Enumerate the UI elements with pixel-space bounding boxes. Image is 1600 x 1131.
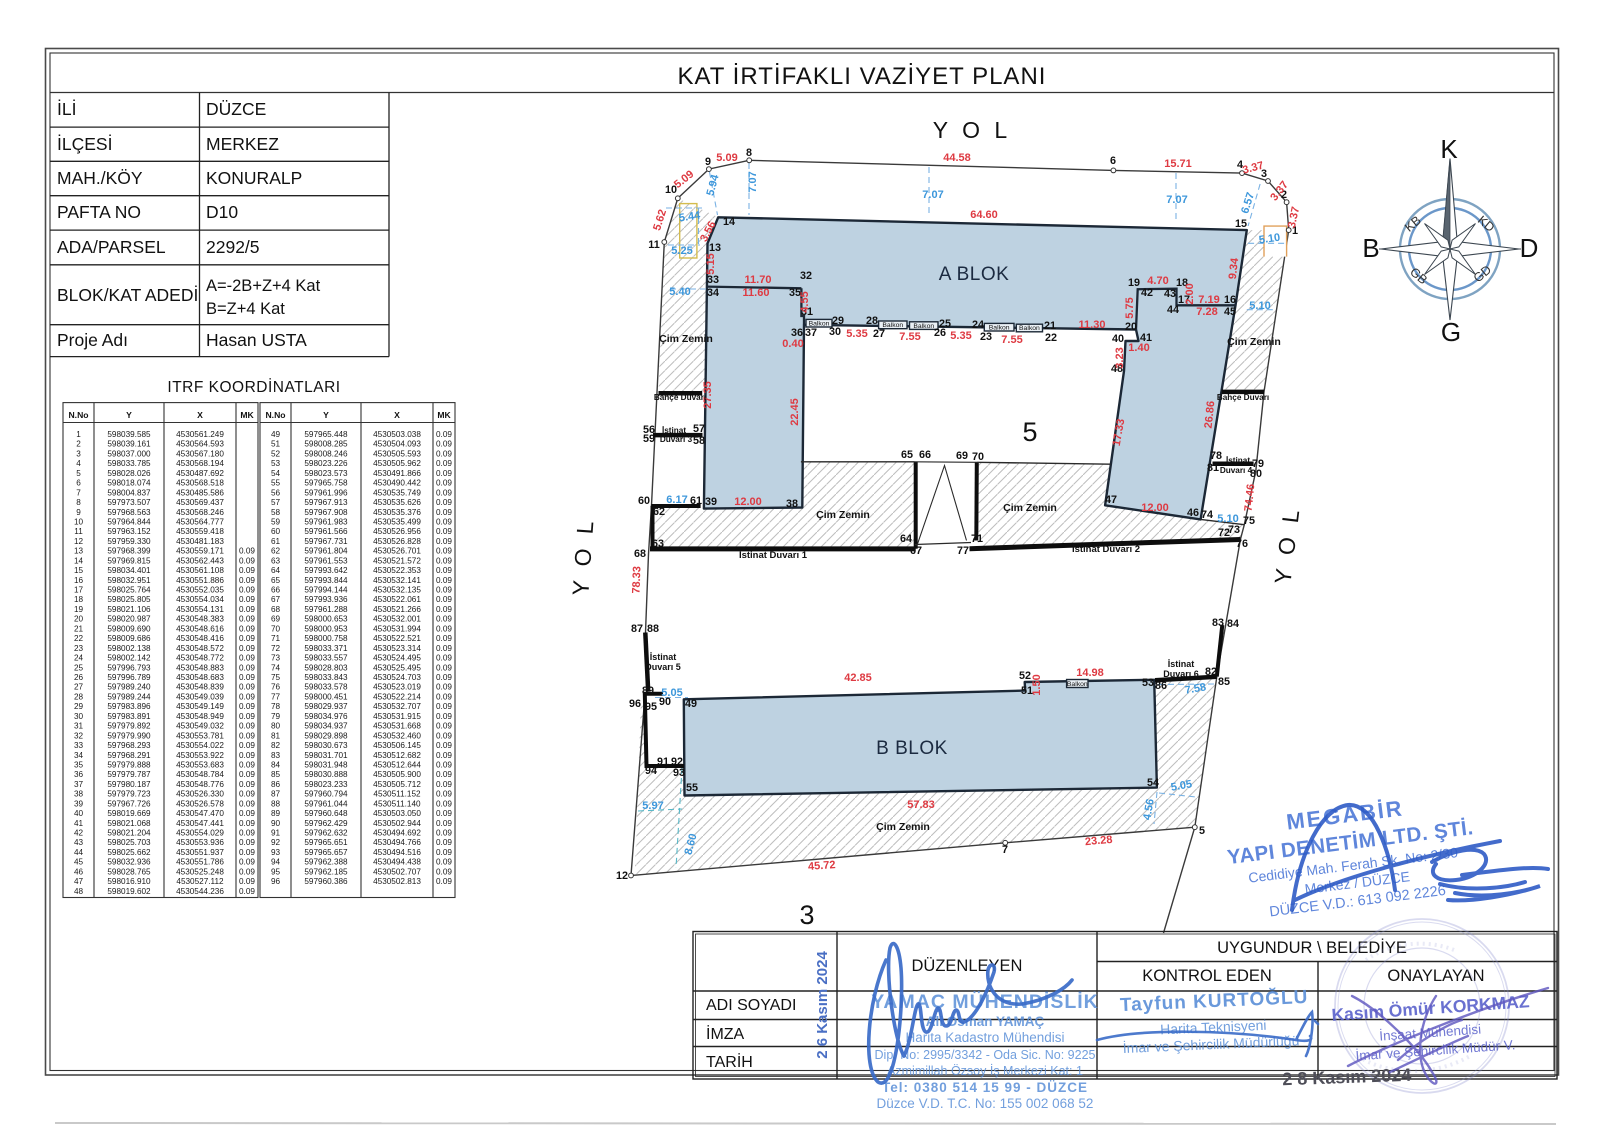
svg-text:5.09: 5.09 (672, 168, 696, 191)
svg-text:Y O L: Y O L (1269, 505, 1304, 586)
svg-text:TARİH: TARİH (706, 1052, 753, 1071)
svg-text:78: 78 (271, 702, 281, 711)
svg-text:K: K (1440, 134, 1458, 164)
svg-text:597994.144: 597994.144 (304, 586, 348, 595)
svg-text:4530559.171: 4530559.171 (176, 547, 224, 556)
svg-text:598039.161: 598039.161 (107, 440, 151, 449)
svg-text:0.09: 0.09 (239, 858, 255, 867)
svg-text:MK: MK (240, 410, 254, 420)
svg-text:65: 65 (271, 576, 281, 585)
svg-text:0.09: 0.09 (239, 615, 255, 624)
svg-text:597965.448: 597965.448 (304, 430, 348, 439)
svg-text:42: 42 (1141, 287, 1153, 299)
svg-text:72: 72 (271, 644, 281, 653)
svg-text:7: 7 (1002, 844, 1008, 856)
svg-text:0.09: 0.09 (436, 527, 452, 536)
svg-text:12: 12 (616, 870, 628, 882)
svg-text:31: 31 (74, 722, 84, 731)
svg-text:4530494.438: 4530494.438 (373, 858, 421, 867)
svg-text:4530491.866: 4530491.866 (373, 469, 421, 478)
svg-text:1: 1 (76, 430, 81, 439)
svg-text:52: 52 (1019, 670, 1031, 682)
svg-text:597967.913: 597967.913 (304, 498, 348, 507)
svg-text:0.09: 0.09 (239, 877, 255, 886)
svg-text:B: B (1362, 233, 1379, 263)
svg-text:İLİ: İLİ (57, 99, 76, 119)
svg-text:88: 88 (271, 799, 281, 808)
svg-text:İstinat: İstinat (1168, 659, 1195, 669)
svg-text:83: 83 (1212, 617, 1224, 629)
svg-text:597960.648: 597960.648 (304, 809, 348, 818)
svg-text:24: 24 (74, 654, 84, 663)
svg-text:0.09: 0.09 (239, 634, 255, 643)
svg-text:597989.240: 597989.240 (107, 683, 151, 692)
svg-text:64.60: 64.60 (970, 209, 998, 221)
svg-text:19: 19 (1128, 277, 1140, 289)
svg-text:İLÇESİ: İLÇESİ (57, 134, 112, 154)
svg-text:0.09: 0.09 (239, 547, 255, 556)
svg-text:0.09: 0.09 (239, 819, 255, 828)
svg-text:4530548.883: 4530548.883 (176, 663, 224, 672)
svg-text:0.09: 0.09 (436, 547, 452, 556)
svg-text:0.40: 0.40 (782, 338, 803, 350)
svg-text:36: 36 (74, 770, 84, 779)
svg-text:90: 90 (271, 819, 281, 828)
svg-text:7.28: 7.28 (1196, 306, 1217, 318)
svg-text:33: 33 (74, 741, 84, 750)
svg-text:KD: KD (1475, 213, 1497, 235)
svg-text:4530535.499: 4530535.499 (373, 518, 421, 527)
svg-text:4530548.949: 4530548.949 (176, 712, 224, 721)
svg-text:15: 15 (74, 566, 84, 575)
svg-text:87: 87 (271, 790, 281, 799)
svg-text:598030.673: 598030.673 (304, 741, 348, 750)
svg-text:0.09: 0.09 (239, 712, 255, 721)
svg-text:0.09: 0.09 (239, 731, 255, 740)
svg-text:15.71: 15.71 (1164, 158, 1192, 170)
svg-text:0.09: 0.09 (436, 867, 452, 876)
svg-text:597968.399: 597968.399 (107, 547, 151, 556)
svg-text:21: 21 (1044, 320, 1056, 332)
svg-text:62: 62 (271, 547, 281, 556)
svg-text:598002.138: 598002.138 (107, 644, 151, 653)
svg-text:Proje Adı: Proje Adı (57, 330, 128, 350)
svg-text:82: 82 (271, 741, 281, 750)
svg-text:0.09: 0.09 (239, 770, 255, 779)
svg-text:7: 7 (76, 488, 81, 497)
svg-text:6: 6 (76, 479, 81, 488)
svg-text:597959.330: 597959.330 (107, 537, 151, 546)
svg-text:2.00: 2.00 (1184, 283, 1196, 304)
svg-text:26: 26 (74, 673, 84, 682)
svg-text:40: 40 (74, 809, 84, 818)
svg-text:598000.758: 598000.758 (304, 634, 348, 643)
svg-text:0.09: 0.09 (436, 799, 452, 808)
svg-text:49: 49 (685, 698, 697, 710)
svg-text:598025.662: 598025.662 (107, 848, 151, 857)
svg-text:32: 32 (74, 731, 84, 740)
svg-text:597996.789: 597996.789 (107, 673, 151, 682)
svg-text:20: 20 (74, 615, 84, 624)
svg-text:4530531.915: 4530531.915 (373, 712, 421, 721)
svg-text:X: X (197, 410, 203, 420)
svg-text:0.09: 0.09 (436, 518, 452, 527)
svg-text:Çim Zemin: Çim Zemin (876, 821, 930, 833)
svg-text:Balkon: Balkon (1019, 325, 1040, 332)
svg-text:4530525.495: 4530525.495 (373, 663, 421, 672)
svg-text:598002.142: 598002.142 (107, 654, 151, 663)
svg-text:597993.936: 597993.936 (304, 595, 348, 604)
svg-text:11.70: 11.70 (745, 274, 772, 286)
svg-text:68: 68 (271, 605, 281, 614)
svg-text:4530554.131: 4530554.131 (176, 605, 224, 614)
svg-text:0.09: 0.09 (436, 751, 452, 760)
svg-text:4530505.962: 4530505.962 (373, 459, 421, 468)
svg-text:ADA/PARSEL: ADA/PARSEL (57, 237, 166, 257)
svg-text:2 8 Kasım 2024: 2 8 Kasım 2024 (1282, 1065, 1412, 1089)
svg-text:30: 30 (829, 326, 841, 338)
svg-text:598009.686: 598009.686 (107, 634, 151, 643)
svg-text:4530512.644: 4530512.644 (373, 761, 421, 770)
svg-text:5.75: 5.75 (1124, 297, 1136, 318)
svg-text:69: 69 (271, 615, 281, 624)
svg-text:4530567.180: 4530567.180 (176, 449, 224, 458)
svg-text:0.09: 0.09 (239, 673, 255, 682)
svg-text:4530487.692: 4530487.692 (176, 469, 224, 478)
svg-text:0.09: 0.09 (239, 605, 255, 614)
svg-text:597983.896: 597983.896 (107, 702, 151, 711)
svg-text:57: 57 (693, 423, 705, 435)
svg-text:14.98: 14.98 (1076, 667, 1104, 679)
svg-text:4.55: 4.55 (799, 291, 811, 312)
svg-text:22.45: 22.45 (789, 398, 801, 426)
svg-text:0.09: 0.09 (436, 683, 452, 692)
svg-text:Balkon: Balkon (1067, 681, 1088, 688)
svg-text:4530548.776: 4530548.776 (176, 780, 224, 789)
svg-text:43: 43 (74, 838, 84, 847)
svg-text:Duvarı 4: Duvarı 4 (1220, 466, 1253, 475)
svg-text:MK: MK (437, 410, 451, 420)
svg-text:0.09: 0.09 (436, 702, 452, 711)
svg-text:598039.585: 598039.585 (107, 430, 151, 439)
svg-text:0.09: 0.09 (239, 790, 255, 799)
svg-text:2292/5: 2292/5 (206, 237, 260, 257)
svg-text:75: 75 (1243, 515, 1255, 527)
svg-text:0.09: 0.09 (436, 673, 452, 682)
svg-text:6: 6 (1110, 155, 1116, 167)
svg-text:597967.731: 597967.731 (304, 537, 348, 546)
svg-text:93: 93 (271, 848, 281, 857)
svg-text:4530481.183: 4530481.183 (176, 537, 224, 546)
svg-text:85: 85 (271, 770, 281, 779)
svg-text:4530548.616: 4530548.616 (176, 624, 224, 633)
svg-text:0.09: 0.09 (436, 634, 452, 643)
svg-text:4530511.140: 4530511.140 (373, 799, 421, 808)
svg-text:45: 45 (74, 858, 84, 867)
svg-text:4530524.703: 4530524.703 (373, 673, 421, 682)
svg-text:41: 41 (74, 819, 84, 828)
svg-text:598018.074: 598018.074 (107, 479, 151, 488)
svg-text:0.09: 0.09 (436, 761, 452, 770)
svg-text:13: 13 (74, 547, 84, 556)
svg-text:598033.557: 598033.557 (304, 654, 348, 663)
svg-text:598020.987: 598020.987 (107, 615, 151, 624)
svg-text:4530564.593: 4530564.593 (176, 440, 224, 449)
svg-text:Balkon: Balkon (882, 322, 903, 329)
svg-text:9: 9 (76, 508, 81, 517)
svg-text:11.60: 11.60 (743, 287, 770, 299)
svg-text:597996.793: 597996.793 (107, 663, 151, 672)
svg-text:Tel: 0380 514 15 99 - DÜZCE: Tel: 0380 514 15 99 - DÜZCE (882, 1080, 1088, 1095)
svg-text:74: 74 (1201, 509, 1213, 521)
svg-text:Duvarı 5: Duvarı 5 (645, 662, 681, 672)
svg-text:598028.026: 598028.026 (107, 469, 151, 478)
svg-text:DÜZENLEYEN: DÜZENLEYEN (912, 957, 1023, 975)
svg-text:49: 49 (271, 430, 281, 439)
svg-text:597962.429: 597962.429 (304, 819, 348, 828)
svg-text:598033.371: 598033.371 (304, 644, 348, 653)
svg-text:598033.785: 598033.785 (107, 459, 151, 468)
svg-text:25: 25 (939, 318, 951, 330)
svg-text:4530554.022: 4530554.022 (176, 741, 224, 750)
svg-text:4.70: 4.70 (1147, 275, 1168, 287)
svg-text:4530505.712: 4530505.712 (373, 780, 421, 789)
svg-text:45.72: 45.72 (808, 859, 836, 873)
svg-text:0.09: 0.09 (239, 624, 255, 633)
svg-text:88: 88 (647, 623, 659, 635)
svg-text:0.09: 0.09 (436, 556, 452, 565)
svg-text:38: 38 (74, 790, 84, 799)
svg-text:74.46: 74.46 (1243, 483, 1258, 512)
svg-text:4530552.035: 4530552.035 (176, 586, 224, 595)
svg-text:ONAYLAYAN: ONAYLAYAN (1387, 967, 1484, 985)
svg-text:ITRF KOORDİNATLARI: ITRF KOORDİNATLARI (167, 378, 340, 396)
svg-text:44: 44 (74, 848, 84, 857)
svg-text:59: 59 (643, 433, 655, 445)
svg-text:38: 38 (786, 498, 798, 510)
svg-text:598030.888: 598030.888 (304, 770, 348, 779)
svg-text:4530553.781: 4530553.781 (176, 731, 224, 740)
svg-text:0.09: 0.09 (436, 479, 452, 488)
svg-text:0.09: 0.09 (239, 887, 255, 896)
svg-text:53: 53 (271, 459, 281, 468)
svg-text:D: D (1520, 233, 1539, 263)
svg-text:597979.787: 597979.787 (107, 770, 151, 779)
svg-text:0.09: 0.09 (239, 683, 255, 692)
svg-text:4530504.093: 4530504.093 (373, 440, 421, 449)
svg-text:4530553.683: 4530553.683 (176, 761, 224, 770)
svg-text:16: 16 (74, 576, 84, 585)
svg-text:0.09: 0.09 (436, 848, 452, 857)
svg-text:4530526.701: 4530526.701 (373, 547, 421, 556)
svg-text:86: 86 (271, 780, 281, 789)
svg-text:598025.805: 598025.805 (107, 595, 151, 604)
svg-text:5.10: 5.10 (1217, 513, 1238, 525)
svg-text:4530526.330: 4530526.330 (176, 790, 224, 799)
svg-text:0.09: 0.09 (436, 449, 452, 458)
svg-text:4530522.214: 4530522.214 (373, 692, 421, 701)
svg-text:8: 8 (746, 147, 752, 159)
svg-text:4530522.061: 4530522.061 (373, 595, 421, 604)
svg-text:0.09: 0.09 (436, 586, 452, 595)
svg-text:80: 80 (271, 722, 281, 731)
svg-text:27: 27 (873, 328, 885, 340)
svg-text:82: 82 (1205, 666, 1217, 678)
svg-text:597967.726: 597967.726 (107, 799, 151, 808)
svg-text:42: 42 (74, 829, 84, 838)
svg-text:0.09: 0.09 (436, 877, 452, 886)
svg-text:7.07: 7.07 (1166, 194, 1187, 206)
svg-text:61: 61 (271, 537, 281, 546)
svg-text:0.09: 0.09 (239, 644, 255, 653)
svg-text:67: 67 (271, 595, 281, 604)
svg-text:597961.044: 597961.044 (304, 799, 348, 808)
svg-text:598000.451: 598000.451 (304, 692, 348, 701)
svg-text:0.09: 0.09 (436, 459, 452, 468)
svg-text:597960.794: 597960.794 (304, 790, 348, 799)
svg-text:23.28: 23.28 (1085, 834, 1113, 848)
svg-text:9: 9 (705, 156, 711, 168)
svg-text:5.35: 5.35 (950, 330, 971, 342)
svg-text:597965.758: 597965.758 (304, 479, 348, 488)
svg-text:73: 73 (1228, 524, 1240, 536)
svg-text:23: 23 (980, 331, 992, 343)
svg-text:4530522.353: 4530522.353 (373, 566, 421, 575)
svg-text:Y: Y (126, 410, 132, 420)
svg-text:4530548.416: 4530548.416 (176, 634, 224, 643)
svg-text:598008.285: 598008.285 (304, 440, 348, 449)
svg-text:Y O L: Y O L (567, 516, 598, 596)
svg-text:65: 65 (901, 449, 913, 461)
svg-text:4530568.518: 4530568.518 (176, 479, 224, 488)
svg-text:8: 8 (76, 498, 81, 507)
svg-text:3.23: 3.23 (1114, 347, 1126, 368)
svg-text:1.40: 1.40 (1128, 342, 1149, 354)
svg-text:0.09: 0.09 (239, 586, 255, 595)
svg-text:597980.187: 597980.187 (107, 780, 151, 789)
svg-text:64: 64 (900, 533, 912, 545)
svg-text:KB: KB (1402, 213, 1424, 234)
svg-text:597961.804: 597961.804 (304, 547, 348, 556)
svg-text:4530559.418: 4530559.418 (176, 527, 224, 536)
svg-text:3: 3 (799, 900, 814, 930)
svg-text:51: 51 (271, 440, 281, 449)
svg-text:597969.815: 597969.815 (107, 556, 151, 565)
svg-text:598034.937: 598034.937 (304, 722, 348, 731)
svg-text:598029.898: 598029.898 (304, 731, 348, 740)
svg-text:0.09: 0.09 (436, 780, 452, 789)
svg-text:6.17: 6.17 (666, 494, 687, 506)
svg-text:0.09: 0.09 (436, 741, 452, 750)
svg-text:7.55: 7.55 (899, 331, 920, 343)
svg-text:4530562.443: 4530562.443 (176, 556, 224, 565)
svg-text:597983.891: 597983.891 (107, 712, 151, 721)
svg-text:89: 89 (642, 685, 654, 697)
svg-text:24: 24 (972, 319, 984, 331)
svg-text:4530551.937: 4530551.937 (176, 848, 224, 857)
svg-text:0.09: 0.09 (436, 663, 452, 672)
svg-text:MAH./KÖY: MAH./KÖY (57, 168, 143, 188)
svg-text:Çim Zemin: Çim Zemin (659, 333, 713, 345)
svg-text:Azmimillah Özsoy İş Merkezi Ka: Azmimillah Özsoy İş Merkezi Kat: 1 (887, 1064, 1083, 1078)
svg-text:70: 70 (271, 624, 281, 633)
svg-text:74: 74 (271, 663, 281, 672)
svg-text:1.50: 1.50 (1031, 674, 1043, 695)
svg-text:81: 81 (271, 731, 281, 740)
svg-text:0.09: 0.09 (436, 858, 452, 867)
svg-text:93: 93 (673, 767, 685, 779)
svg-text:597961.553: 597961.553 (304, 556, 348, 565)
svg-text:34: 34 (74, 751, 84, 760)
svg-text:84: 84 (271, 761, 281, 770)
svg-text:4530547.441: 4530547.441 (176, 819, 224, 828)
svg-text:Bahçe Duvarı: Bahçe Duvarı (1217, 393, 1269, 402)
svg-text:58: 58 (693, 435, 705, 447)
svg-text:4530531.668: 4530531.668 (373, 722, 421, 731)
svg-text:22: 22 (1045, 332, 1057, 344)
svg-text:598025.703: 598025.703 (107, 838, 151, 847)
svg-text:598021.068: 598021.068 (107, 819, 151, 828)
svg-text:4530549.039: 4530549.039 (176, 692, 224, 701)
svg-text:5.09: 5.09 (716, 152, 737, 164)
svg-text:4530494.692: 4530494.692 (373, 829, 421, 838)
svg-text:Y: Y (323, 410, 329, 420)
svg-text:4530561.249: 4530561.249 (176, 430, 224, 439)
svg-text:597973.507: 597973.507 (107, 498, 151, 507)
svg-text:47: 47 (1105, 494, 1117, 506)
svg-text:598034.976: 598034.976 (304, 712, 348, 721)
svg-text:27: 27 (74, 683, 84, 692)
svg-text:37: 37 (805, 327, 817, 339)
svg-text:597961.983: 597961.983 (304, 518, 348, 527)
svg-text:63: 63 (271, 556, 281, 565)
svg-text:0.09: 0.09 (436, 566, 452, 575)
svg-text:4530502.707: 4530502.707 (373, 867, 421, 876)
svg-text:95: 95 (271, 867, 281, 876)
svg-text:N.No: N.No (265, 410, 285, 420)
svg-text:0.09: 0.09 (239, 867, 255, 876)
svg-text:598032.951: 598032.951 (107, 576, 151, 585)
svg-text:46: 46 (1187, 507, 1199, 519)
svg-text:0.09: 0.09 (436, 829, 452, 838)
svg-text:597979.723: 597979.723 (107, 790, 151, 799)
svg-text:4530525.248: 4530525.248 (176, 867, 224, 876)
svg-text:37: 37 (74, 780, 84, 789)
svg-text:35: 35 (74, 761, 84, 770)
svg-text:0.09: 0.09 (436, 644, 452, 653)
svg-text:33: 33 (707, 274, 719, 286)
svg-text:15: 15 (1235, 218, 1247, 230)
svg-text:7.19: 7.19 (1198, 294, 1219, 306)
svg-text:91: 91 (271, 829, 281, 838)
svg-text:0.09: 0.09 (436, 790, 452, 799)
svg-text:5: 5 (1022, 417, 1037, 447)
svg-text:ADI SOYADI: ADI SOYADI (706, 997, 796, 1014)
svg-text:4530532.707: 4530532.707 (373, 702, 421, 711)
svg-text:4530548.572: 4530548.572 (176, 644, 224, 653)
svg-text:Hasan USTA: Hasan USTA (206, 330, 307, 350)
svg-text:0.09: 0.09 (436, 595, 452, 604)
svg-text:5.10: 5.10 (1249, 300, 1270, 312)
svg-text:597962.388: 597962.388 (304, 858, 348, 867)
svg-text:53: 53 (1142, 677, 1154, 689)
svg-text:4530512.682: 4530512.682 (373, 751, 421, 760)
svg-text:17: 17 (74, 586, 84, 595)
svg-text:0.09: 0.09 (436, 809, 452, 818)
svg-text:13: 13 (709, 242, 721, 254)
svg-text:0.09: 0.09 (239, 722, 255, 731)
svg-text:0.09: 0.09 (239, 663, 255, 672)
